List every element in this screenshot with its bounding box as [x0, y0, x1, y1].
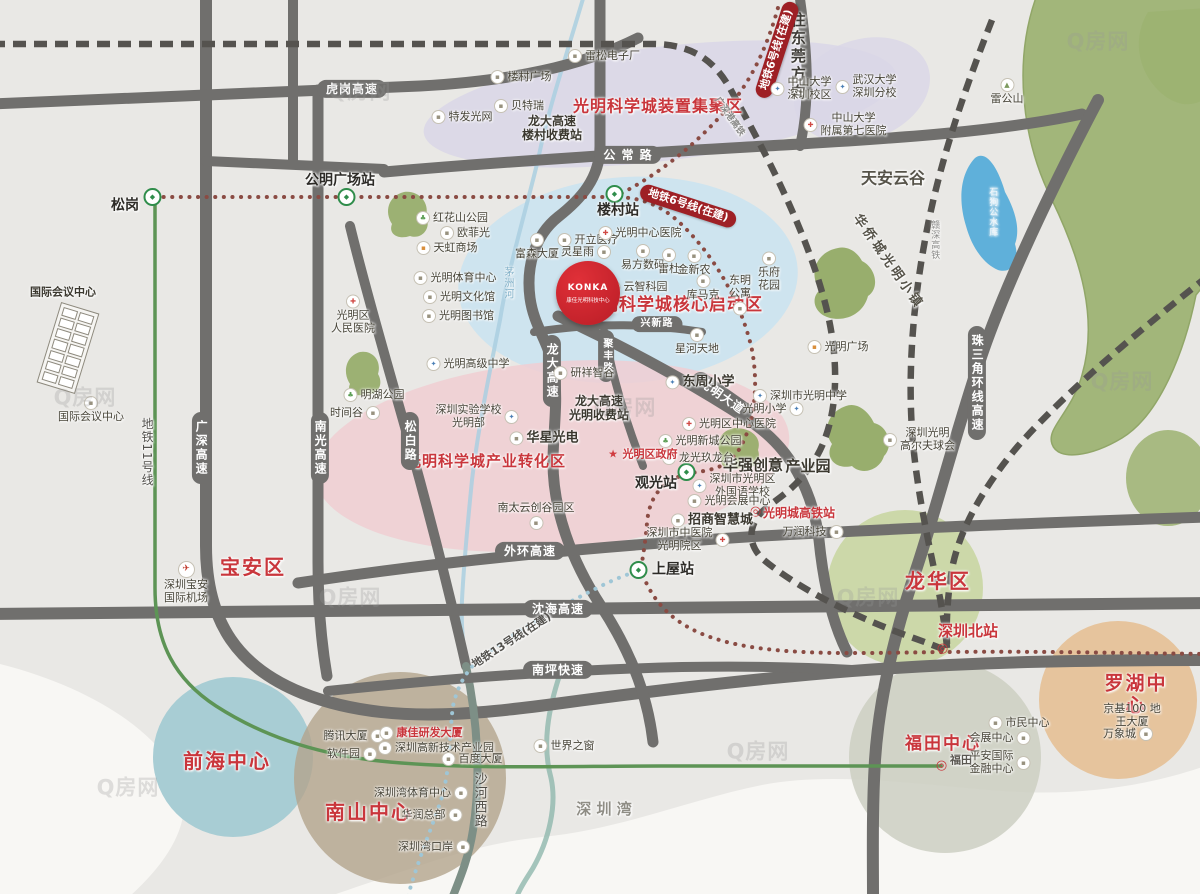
road-waihuan-expwy: 外环高速: [495, 542, 565, 560]
area-shenzhen-bay-label: 深 圳 湾: [576, 801, 631, 819]
hospital-icon: ✚: [682, 417, 696, 431]
poi-huarun-hq: 华润总部▪: [402, 808, 463, 822]
poi-gm-central-district-hospital: ✚光明区中心医院: [682, 417, 776, 431]
b-icon: ▪: [422, 309, 436, 323]
poi-gm-district-government: ★光明区政府: [607, 449, 678, 462]
metro6-badge-east-label: 地铁6号线(在建): [646, 187, 730, 225]
poi-xinghe-tiandi: ▪星河天地: [675, 328, 719, 356]
road-gongchang-rd-label: 公 常 路: [603, 148, 652, 162]
poi-pingan-ifc-label: 平安国际 金融中心: [970, 750, 1014, 776]
watermark-2: Q房网: [54, 386, 117, 411]
star-icon: ★: [607, 449, 620, 462]
river-maozhou-label-label: 茅洲河: [501, 267, 513, 300]
road-zhusanjiao-ring-expwy-label: 珠三角环线高速: [970, 334, 984, 432]
station-futian-icon: ◎: [935, 759, 952, 773]
b-icon: ▪: [380, 726, 394, 740]
area-chanyeyuan: 产业园: [785, 458, 830, 476]
poi-sysu-7th-hospital-label: 中山大学 附属第七医院: [821, 112, 887, 138]
watermark-7: Q房网: [97, 776, 160, 801]
poi-gm-library-label: 光明图书馆: [439, 310, 494, 323]
poi-gm-golf-club-label: 深圳光明 高尔夫球会: [900, 427, 955, 453]
poi-intl-conference-label: 国际会议中心: [58, 411, 124, 424]
poi-kumake-label: 库马克: [687, 289, 720, 302]
poi-konka-rd-tower: ▪康佳研发大厦: [380, 726, 463, 740]
poi-wanrun-tech-label: 万润科技: [783, 526, 827, 539]
metro-icon: ◆: [630, 561, 648, 579]
metro-line11-label-label: 地铁11号线: [140, 417, 154, 486]
poi-baidu-tower-label: 百度大厦: [459, 753, 503, 766]
station-loucun-label: 楼村站: [597, 203, 639, 220]
poi-gm-plaza: ▪光明广场: [808, 340, 869, 354]
poi-gm-xincheng-park: ♣光明新城公园: [659, 434, 742, 448]
poi-yanxiang-zhigu-label: 研祥智谷: [571, 367, 615, 380]
road-guangshen-expwy-label: 广深高速: [194, 420, 208, 476]
watermark-9-label: Q房网: [1091, 370, 1154, 395]
poi-oufeiguang: ▪欧菲光: [440, 226, 490, 240]
b-icon: ▪: [696, 274, 710, 288]
poi-shenzhen-bay-sports-label: 深圳湾体育中心: [374, 787, 451, 800]
poi-leisong-electronics: ▪雷松电子厂: [568, 49, 640, 63]
poi-shenzhen-bay-port: 深圳湾口岸▪: [398, 840, 470, 854]
poi-civic-center-label: 市民中心: [1006, 717, 1050, 730]
poi-beiterui: ▪贝特瑞: [494, 99, 544, 113]
b-icon: ▪: [366, 406, 380, 420]
district-longhua: 龙华区: [905, 570, 971, 594]
poi-kumake: ▪库马克: [687, 274, 720, 302]
station-shangwu: 上屋站: [652, 562, 694, 579]
station-guangmingcheng-hsr: 光明城高铁站: [763, 506, 835, 520]
b-icon: ▪: [454, 786, 468, 800]
guangming-science-city-map: KONKA 康佳光明科技中心 光明科学城装置集聚区光明科学城核心启动区光明科学城…: [0, 0, 1200, 894]
b-icon: ▪: [688, 494, 702, 508]
watermark-4: Q房网: [594, 396, 657, 421]
poi-nantai-yunchuanggu: 南太云创谷园区▪: [498, 502, 575, 530]
watermark-9: Q房网: [1091, 370, 1154, 395]
konka-project-label: 康佳光明科技中心: [566, 295, 609, 303]
area-tianan-cloud-valley-label: 天安云谷: [861, 170, 925, 189]
poi-tefa-guangwang: ▪特发光网: [432, 110, 493, 124]
watermark-6: Q房网: [1067, 30, 1130, 55]
b-icon: ▪: [378, 741, 392, 755]
watermark-8-label: Q房网: [727, 740, 790, 765]
watermark-5-label: Q房网: [837, 586, 900, 611]
poi-gm-culture-hall-label: 光明文化馆: [440, 291, 495, 304]
road-nanping-expwy-label: 南坪快速: [532, 663, 584, 677]
poi-window-of-world-label: 世界之窗: [551, 740, 595, 753]
zone-industry-transform-label: 光明科学城产业转化区: [406, 453, 566, 471]
b-icon: ▪: [636, 244, 650, 258]
poi-dongzhou-primary: ✦东周小学: [665, 374, 734, 389]
b-icon: ▪: [414, 271, 428, 285]
b-icon: ▪: [494, 99, 508, 113]
poi-huaxing-optoelectronics-label: 华星光电: [526, 430, 578, 445]
school-icon: ✦: [693, 479, 707, 493]
b-icon: ▪: [1139, 727, 1153, 741]
school-icon: ✦: [753, 389, 767, 403]
poi-jinxinnong: ▪金新农: [678, 249, 711, 277]
road-shahexi-label-label: 沙河西路: [471, 772, 486, 828]
hospital-icon: ✚: [804, 118, 818, 132]
b-icon: ▪: [1017, 731, 1031, 745]
station-shenzhenbei-label: 深圳北站: [938, 623, 998, 641]
poi-minghu-park: ♣明湖公园: [344, 388, 405, 402]
poi-honghuashan-park: ♣红花山公园: [416, 211, 488, 225]
area-tianan-cloud-valley: 天安云谷: [861, 170, 925, 189]
road-nanguang-expwy: 南光高速: [311, 412, 329, 484]
metro-line11-label: 地铁11号线: [140, 417, 154, 486]
watermark-2-label: Q房网: [54, 386, 117, 411]
station-songgang-icon: ◆: [144, 188, 165, 206]
b-icon: ▪: [530, 233, 544, 247]
area-shenzhen-bay: 深 圳 湾: [576, 801, 631, 819]
hospital-icon: ✚: [716, 533, 730, 547]
note-loucun-toll-label: 龙大高速 楼村收费站: [522, 114, 582, 142]
district-nanshan-label: 南山中心: [325, 801, 413, 825]
area-oct-guangming-town: 华侨城光明小镇: [850, 212, 927, 313]
b-icon: ▪: [671, 513, 685, 527]
poi-mixc-label: 万象城: [1103, 728, 1136, 741]
b-icon: ▪: [456, 840, 470, 854]
konka-project-marker: KONKA 康佳光明科技中心: [556, 261, 620, 325]
poi-yunzhi-keyuan-label: 云智科园: [624, 281, 668, 294]
school-icon: ✦: [836, 80, 850, 94]
b-icon: ▪: [509, 431, 523, 445]
poi-gm-primary-label: 光明小学: [743, 403, 787, 416]
poi-shenzhen-bay-sports: 深圳湾体育中心▪: [374, 786, 468, 800]
poi-lefu-garden-label: 乐府 花园: [758, 267, 780, 293]
b-icon: ▪: [733, 301, 747, 315]
poi-gm-people-hospital: ✚光明区 人民医院: [331, 295, 375, 336]
poi-baidu-tower: ▪百度大厦: [442, 752, 503, 766]
b-icon: ▪: [534, 739, 548, 753]
poi-kingkey100: 京基100 地王大厦: [1098, 703, 1166, 729]
poi-gm-xincheng-park-label: 光明新城公园: [676, 435, 742, 448]
watermark-5: Q房网: [837, 586, 900, 611]
poi-gm-convention-center: ▪光明会展中心: [688, 494, 771, 508]
b-icon: ▪: [442, 752, 456, 766]
b-icon: ▪: [762, 252, 776, 266]
poi-lingxingyu-label: 灵星雨: [561, 246, 594, 259]
park-icon: ♣: [344, 388, 358, 402]
poi-civic-center: ▪市民中心: [989, 716, 1050, 730]
b-icon: ▪: [432, 110, 446, 124]
mount-icon: ▲: [1000, 78, 1014, 92]
station-gongming-plaza-label: 公明广场站: [305, 173, 375, 190]
watermark-7-label: Q房网: [97, 776, 160, 801]
hospital-icon: ✚: [346, 295, 360, 309]
b-icon: ▪: [423, 290, 437, 304]
poi-gm-primary: 光明小学✦: [743, 402, 804, 416]
rail-ganshen-label-label: 赣深高铁: [929, 220, 940, 260]
watermark-8: Q房网: [727, 740, 790, 765]
poi-baoan-airport: ✈深圳宝安 国际机场: [164, 561, 208, 605]
poi-intl-conference-top-label: 国际会议中心: [30, 287, 96, 300]
station-shenzhenbei-icon: ◎: [936, 642, 953, 656]
poi-lefu-garden: ▪乐府 花园: [758, 252, 780, 293]
poi-sysu-shenzhen: ✦中山大学 深圳校区: [771, 76, 832, 102]
poi-gm-central-hospital-label: 光明中心医院: [616, 227, 682, 240]
b-icon: ▪: [449, 808, 463, 822]
poi-tianhong-mall: ▪天虹商场: [417, 241, 478, 255]
rail-ganshen-label: 赣深高铁: [929, 220, 940, 260]
road-waihuan-expwy-label: 外环高速: [504, 544, 556, 558]
district-baoan: 宝安区: [220, 556, 286, 580]
poi-gm-middle-school-label: 深圳市光明中学: [770, 390, 847, 403]
poi-gm-people-hospital-label: 光明区 人民医院: [331, 310, 375, 336]
poi-tcm-hospital-gm: 深圳市中医院 光明院区✚: [647, 527, 730, 553]
poi-convention-center: 会展中心▪: [970, 731, 1031, 745]
b-icon: ▪: [597, 245, 611, 259]
poi-tianhong-mall-label: 天虹商场: [434, 242, 478, 255]
station-guanguang: 观光站: [635, 476, 677, 493]
b-icon: ▪: [363, 747, 377, 761]
poi-sysu-shenzhen-label: 中山大学 深圳校区: [788, 76, 832, 102]
road-songbai-rd-label: 松白路: [403, 420, 417, 462]
poi-nantai-yunchuanggu-label: 南太云创谷园区: [498, 502, 575, 515]
poi-whu-shenzhen: ✦武汉大学 深圳分校: [836, 74, 897, 100]
poi-gm-middle-school: ✦深圳市光明中学: [753, 389, 847, 403]
station-shenzhenbei: 深圳北站: [938, 623, 998, 641]
rail-icon: ◎: [936, 642, 950, 656]
school-icon: ✦: [427, 357, 441, 371]
poi-mixc: 万象城▪: [1103, 727, 1153, 741]
road-nanping-expwy: 南坪快速: [523, 661, 593, 679]
station-guangmingcheng-hsr-label: 光明城高铁站: [763, 506, 835, 520]
poi-gm-culture-hall: ▪光明文化馆: [423, 290, 495, 304]
station-gongming-plaza: 公明广场站: [305, 173, 375, 190]
poi-lingxingyu: 灵星雨▪: [561, 245, 611, 259]
road-shahexi-label: 沙河西路: [471, 772, 486, 828]
b-icon: ▪: [989, 716, 1003, 730]
district-qianhai-label: 前海中心: [183, 750, 271, 774]
road-shenhai-expwy: 沈海高速: [523, 600, 593, 618]
station-guanguang-label: 观光站: [635, 476, 677, 493]
watermark-6-label: Q房网: [1067, 30, 1130, 55]
b-icon: ▪: [687, 249, 701, 263]
poi-gm-sports-center-label: 光明体育中心: [431, 272, 497, 285]
poi-gm-district-government-label: 光明区政府: [623, 449, 678, 462]
station-songgang: 松岗: [111, 198, 139, 215]
b-icon: ▪: [690, 328, 704, 342]
b-icon: ▪: [883, 433, 897, 447]
poi-gm-convention-center-label: 光明会展中心: [705, 495, 771, 508]
mall-icon: ▪: [808, 340, 822, 354]
district-longhua-label: 龙华区: [905, 570, 971, 594]
poi-pingan-ifc: 平安国际 金融中心▪: [970, 750, 1031, 776]
metro-icon: ◆: [606, 185, 624, 203]
poi-huaxing-optoelectronics: ▪华星光电: [509, 430, 578, 445]
poi-baoan-airport-label: 深圳宝安 国际机场: [164, 579, 208, 605]
school-icon: ✦: [771, 82, 785, 96]
road-songbai-rd: 松白路: [401, 412, 419, 470]
school-icon: ✦: [505, 410, 519, 424]
station-loucun: 楼村站: [597, 203, 639, 220]
lake-shigougong-label: 石狗公水库: [987, 187, 998, 237]
b-icon: ▪: [554, 366, 568, 380]
station-shangwu-icon: ◆: [630, 561, 651, 579]
poi-minghu-park-label: 明湖公园: [361, 389, 405, 402]
poi-software-park: 软件园▪: [327, 747, 377, 761]
poi-wanrun-tech: 万润科技▪: [783, 525, 844, 539]
lake-shigougong-label-label: 石狗公水库: [987, 187, 998, 237]
watermark-4-label: Q房网: [594, 396, 657, 421]
poi-beiterui-label: 贝特瑞: [511, 100, 544, 113]
poi-gm-senior-high-label: 光明高级中学: [444, 358, 510, 371]
poi-loucun-plaza: ▪楼村广场: [491, 70, 552, 84]
watermark-3-label: Q房网: [319, 586, 382, 611]
station-loucun-icon: ◆: [606, 185, 627, 203]
hospital-icon: ✚: [599, 226, 613, 240]
map-labels: 光明科学城装置集聚区光明科学城核心启动区光明科学城产业转化区宝安区龙华区前海中心…: [0, 0, 1200, 894]
river-maozhou-label: 茅洲河: [501, 267, 513, 300]
poi-tencent-tower: 腾讯大厦▪: [324, 729, 385, 743]
area-oct-guangming-town-label: 华侨城光明小镇: [850, 212, 927, 313]
poi-intl-conference-top: 国际会议中心: [30, 287, 96, 300]
poi-gm-golf-club: ▪深圳光明 高尔夫球会: [883, 427, 955, 453]
poi-shenzhen-experimental-school-label: 深圳实验学校 光明部: [436, 404, 502, 430]
rail-icon: ◎: [935, 759, 949, 773]
b-icon: ▪: [568, 49, 582, 63]
poi-dongming-apartment: 东明 公寓▪: [729, 275, 751, 316]
poi-dongming-apartment-label: 东明 公寓: [729, 275, 751, 301]
zone-industry-transform: 光明科学城产业转化区: [406, 453, 566, 471]
poi-sysu-7th-hospital: ✚中山大学 附属第七医院: [804, 112, 887, 138]
district-qianhai: 前海中心: [183, 750, 271, 774]
poi-leisong-electronics-label: 雷松电子厂: [585, 50, 640, 63]
poi-gm-central-hospital: ✚光明中心医院: [599, 226, 682, 240]
poi-shenzhen-bay-port-label: 深圳湾口岸: [398, 841, 453, 854]
watermark-1: Q房网: [329, 80, 392, 105]
b-icon: ▪: [491, 70, 505, 84]
park-icon: ♣: [659, 434, 673, 448]
poi-huarun-hq-label: 华润总部: [402, 809, 446, 822]
school-icon: ✦: [665, 375, 679, 389]
road-zhusanjiao-ring-expwy: 珠三角环线高速: [968, 326, 986, 440]
poi-loucun-plaza-label: 楼村广场: [508, 71, 552, 84]
area-chanyeyuan-label: 产业园: [785, 458, 830, 476]
poi-konka-rd-tower-label: 康佳研发大厦: [397, 727, 463, 740]
poi-yanxiang-zhigu: ▪研祥智谷: [554, 366, 615, 380]
park-icon: ♣: [416, 211, 430, 225]
district-nanshan: 南山中心: [325, 801, 413, 825]
note-loucun-toll: 龙大高速 楼村收费站: [522, 114, 582, 142]
station-shangwu-label: 上屋站: [652, 562, 694, 579]
watermark-1-label: Q房网: [329, 80, 392, 105]
poi-leigongshan-label: 雷公山: [991, 93, 1024, 106]
poi-gm-library: ▪光明图书馆: [422, 309, 494, 323]
poi-xinghe-tiandi-label: 星河天地: [675, 343, 719, 356]
b-icon: ▪: [662, 248, 676, 262]
konka-brand: KONKA: [568, 283, 609, 293]
poi-gm-senior-high: ✦光明高级中学: [427, 357, 510, 371]
b-icon: ▪: [1017, 756, 1031, 770]
poi-gm-plaza-label: 光明广场: [825, 341, 869, 354]
b-icon: ▪: [440, 226, 454, 240]
metro6-badge-east: 地铁6号线(在建): [638, 183, 738, 230]
district-baoan-label: 宝安区: [220, 556, 286, 580]
poi-kingkey100-label: 京基100 地王大厦: [1098, 703, 1166, 729]
road-gongchang-rd: 公 常 路: [594, 146, 661, 164]
school-icon: ✦: [790, 402, 804, 416]
poi-honghuashan-park-label: 红花山公园: [433, 212, 488, 225]
poi-gm-central-district-hospital-label: 光明区中心医院: [699, 418, 776, 431]
poi-leigongshan: ▲雷公山: [991, 78, 1024, 106]
poi-window-of-world: ▪世界之窗: [534, 739, 595, 753]
poi-tencent-tower-label: 腾讯大厦: [324, 730, 368, 743]
poi-software-park-label: 软件园: [327, 748, 360, 761]
poi-whu-shenzhen-label: 武汉大学 深圳分校: [853, 74, 897, 100]
poi-fusen-tower-label: 富森大厦: [515, 248, 559, 261]
station-songgang-label: 松岗: [111, 198, 139, 215]
poi-shenzhen-experimental-school: 深圳实验学校 光明部✦: [436, 404, 519, 430]
metro-icon: ◆: [338, 188, 356, 206]
poi-convention-center-label: 会展中心: [970, 732, 1014, 745]
poi-dongzhou-primary-label: 东周小学: [682, 374, 734, 389]
poi-shijiangu-label: 时间谷: [330, 407, 363, 420]
mall-icon: ▪: [417, 241, 431, 255]
poi-gm-sports-center: ▪光明体育中心: [414, 271, 497, 285]
plane-icon: ✈: [178, 561, 195, 578]
road-nanguang-expwy-label: 南光高速: [313, 420, 327, 476]
poi-oufeiguang-label: 欧菲光: [457, 227, 490, 240]
road-xingxin-rd-label: 兴新路: [641, 318, 674, 330]
poi-shijiangu: 时间谷▪: [330, 406, 380, 420]
metro-icon: ◆: [144, 188, 162, 206]
poi-tcm-hospital-gm-label: 深圳市中医院 光明院区: [647, 527, 713, 553]
poi-tefa-guangwang-label: 特发光网: [449, 111, 493, 124]
b-icon: ▪: [830, 525, 844, 539]
watermark-3: Q房网: [319, 586, 382, 611]
poi-fusen-tower: ▪富森大厦: [515, 233, 559, 261]
poi-longguang-jiulongtai-label: 龙光玖龙台: [679, 452, 734, 465]
b-icon: ▪: [529, 516, 543, 530]
road-guangshen-expwy: 广深高速: [192, 412, 210, 484]
station-gongming-icon: ◆: [338, 188, 359, 206]
